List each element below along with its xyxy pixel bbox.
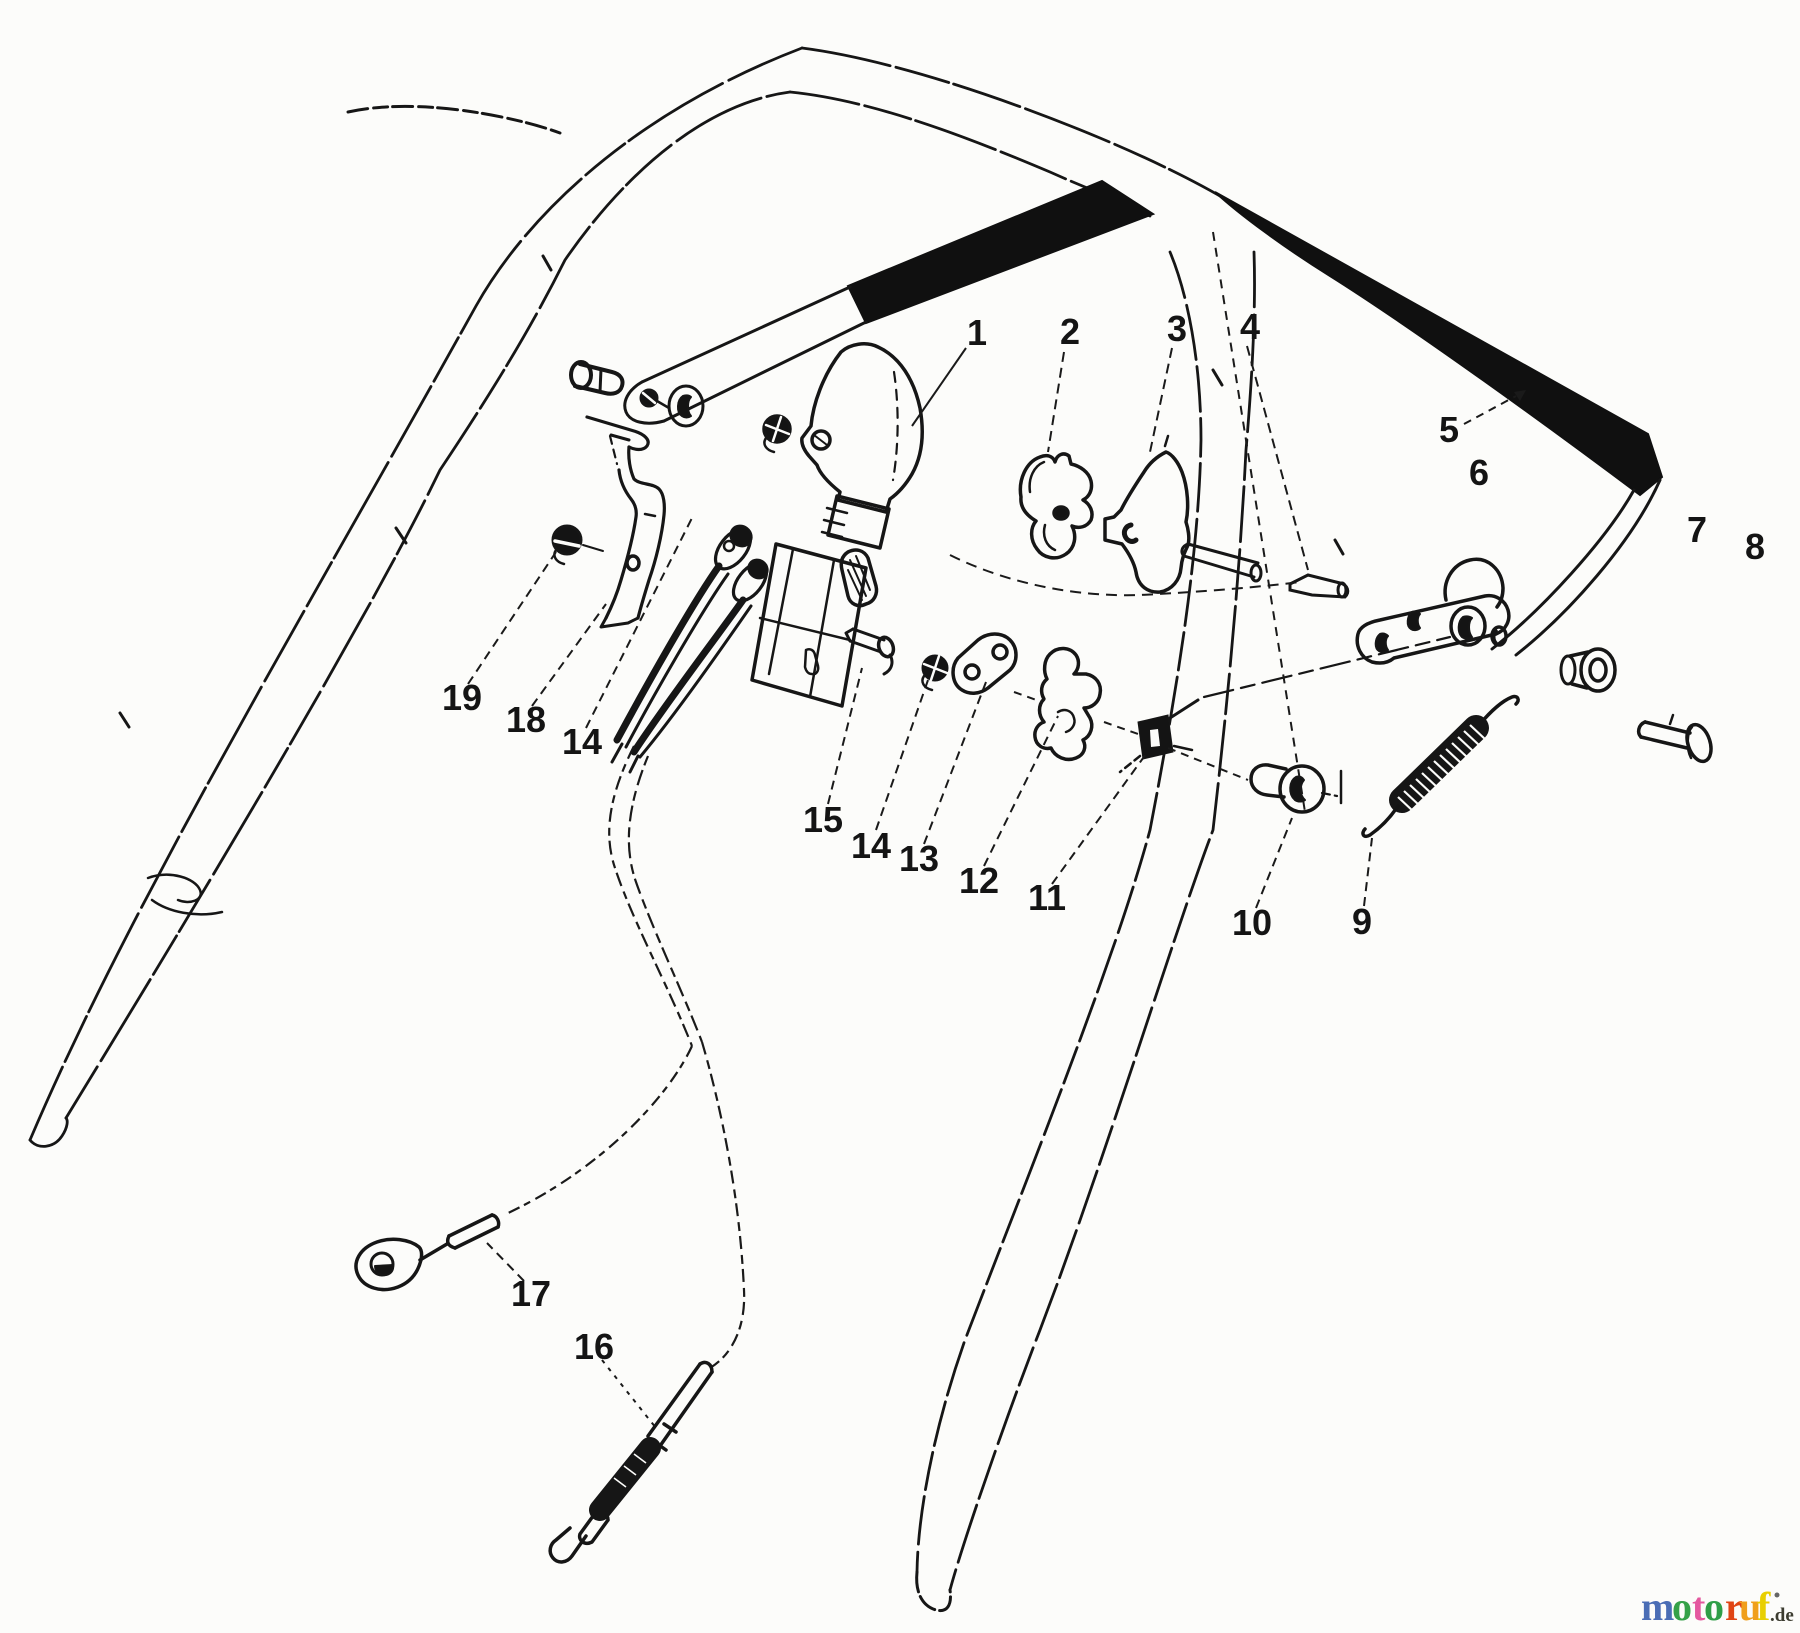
svg-text:o: o xyxy=(1672,1584,1692,1629)
svg-text:4: 4 xyxy=(1240,306,1260,347)
svg-text:1: 1 xyxy=(967,312,987,353)
svg-text:17: 17 xyxy=(511,1273,551,1314)
svg-text:.de: .de xyxy=(1770,1605,1794,1626)
svg-text:8: 8 xyxy=(1745,526,1765,567)
svg-text:9: 9 xyxy=(1352,901,1372,942)
svg-text:2: 2 xyxy=(1060,311,1080,352)
svg-text:o: o xyxy=(1704,1584,1724,1629)
svg-text:7: 7 xyxy=(1687,509,1707,550)
svg-text:15: 15 xyxy=(803,799,843,840)
svg-text:f: f xyxy=(1757,1584,1771,1629)
svg-text:m: m xyxy=(1641,1584,1674,1629)
svg-text:5: 5 xyxy=(1439,409,1459,450)
svg-text:11: 11 xyxy=(1028,877,1066,918)
svg-text:3: 3 xyxy=(1167,308,1187,349)
svg-text:12: 12 xyxy=(959,860,999,901)
svg-text:18: 18 xyxy=(506,699,546,740)
svg-text:19: 19 xyxy=(442,677,482,718)
svg-text:16: 16 xyxy=(574,1326,614,1367)
svg-text:14: 14 xyxy=(851,825,891,866)
svg-text:14: 14 xyxy=(562,721,602,762)
svg-text:6: 6 xyxy=(1469,452,1489,493)
svg-text:13: 13 xyxy=(899,838,939,879)
svg-text:10: 10 xyxy=(1232,902,1272,943)
